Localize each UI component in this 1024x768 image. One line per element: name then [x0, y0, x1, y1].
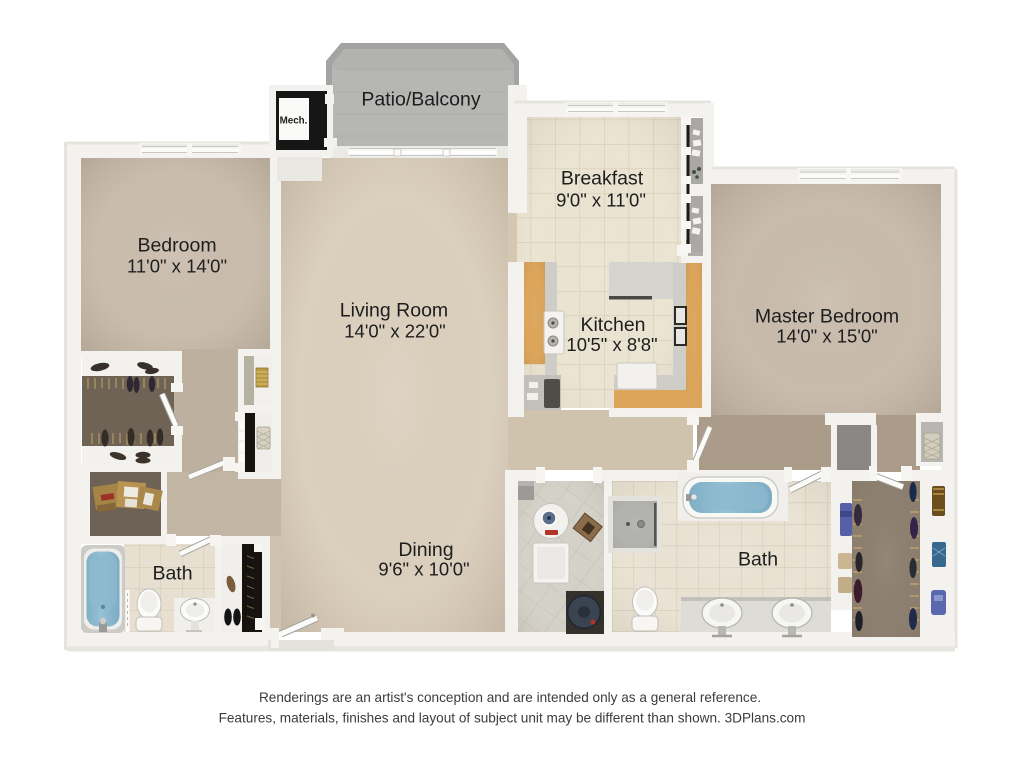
- svg-text:Bath: Bath: [152, 563, 192, 585]
- svg-text:Breakfast: Breakfast: [561, 168, 644, 190]
- svg-text:14'0" x 22'0": 14'0" x 22'0": [344, 321, 445, 342]
- svg-text:Patio/Balcony: Patio/Balcony: [361, 89, 480, 111]
- svg-text:Kitchen: Kitchen: [580, 314, 645, 336]
- svg-text:10'5" x 8'8": 10'5" x 8'8": [566, 334, 657, 355]
- svg-text:14'0" x 15'0": 14'0" x 15'0": [776, 326, 877, 347]
- svg-text:9'0" x 11'0": 9'0" x 11'0": [556, 190, 646, 211]
- svg-text:9'6" x 10'0": 9'6" x 10'0": [378, 559, 469, 580]
- svg-text:Master Bedroom: Master Bedroom: [755, 306, 899, 328]
- svg-text:Bath: Bath: [738, 549, 778, 571]
- svg-text:Mech.: Mech.: [280, 116, 308, 127]
- svg-text:Bedroom: Bedroom: [137, 235, 216, 257]
- svg-text:Renderings are an artist's con: Renderings are an artist's conception an…: [259, 690, 761, 705]
- svg-text:Living Room: Living Room: [340, 300, 448, 322]
- svg-text:Features, materials, finishes: Features, materials, finishes and layout…: [219, 711, 806, 726]
- svg-text:11'0" x 14'0": 11'0" x 14'0": [127, 256, 227, 277]
